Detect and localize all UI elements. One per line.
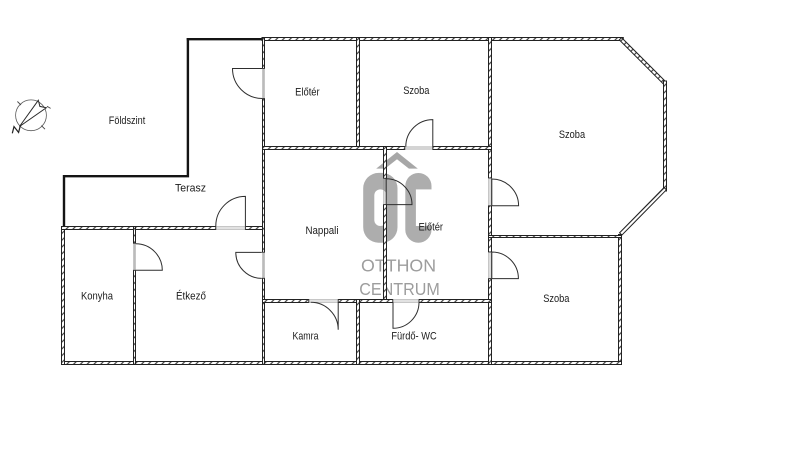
svg-text:Előtér: Előtér	[295, 87, 320, 99]
svg-text:Földszint: Földszint	[109, 115, 146, 127]
svg-text:Terasz: Terasz	[175, 182, 206, 194]
svg-text:Étkező: Étkező	[176, 290, 206, 303]
svg-text:Nappali: Nappali	[306, 225, 339, 237]
svg-text:Konyha: Konyha	[81, 291, 114, 303]
svg-text:Szoba: Szoba	[559, 129, 586, 141]
svg-text:Előtér: Előtér	[419, 222, 444, 234]
svg-text:Kamra: Kamra	[293, 330, 320, 342]
svg-text:Szoba: Szoba	[543, 293, 570, 305]
svg-text:Szoba: Szoba	[403, 85, 430, 97]
svg-text:Fürdő- WC: Fürdő- WC	[391, 330, 436, 342]
svg-text:CENTRUM: CENTRUM	[359, 279, 440, 299]
svg-text:OTTHON: OTTHON	[361, 255, 436, 275]
